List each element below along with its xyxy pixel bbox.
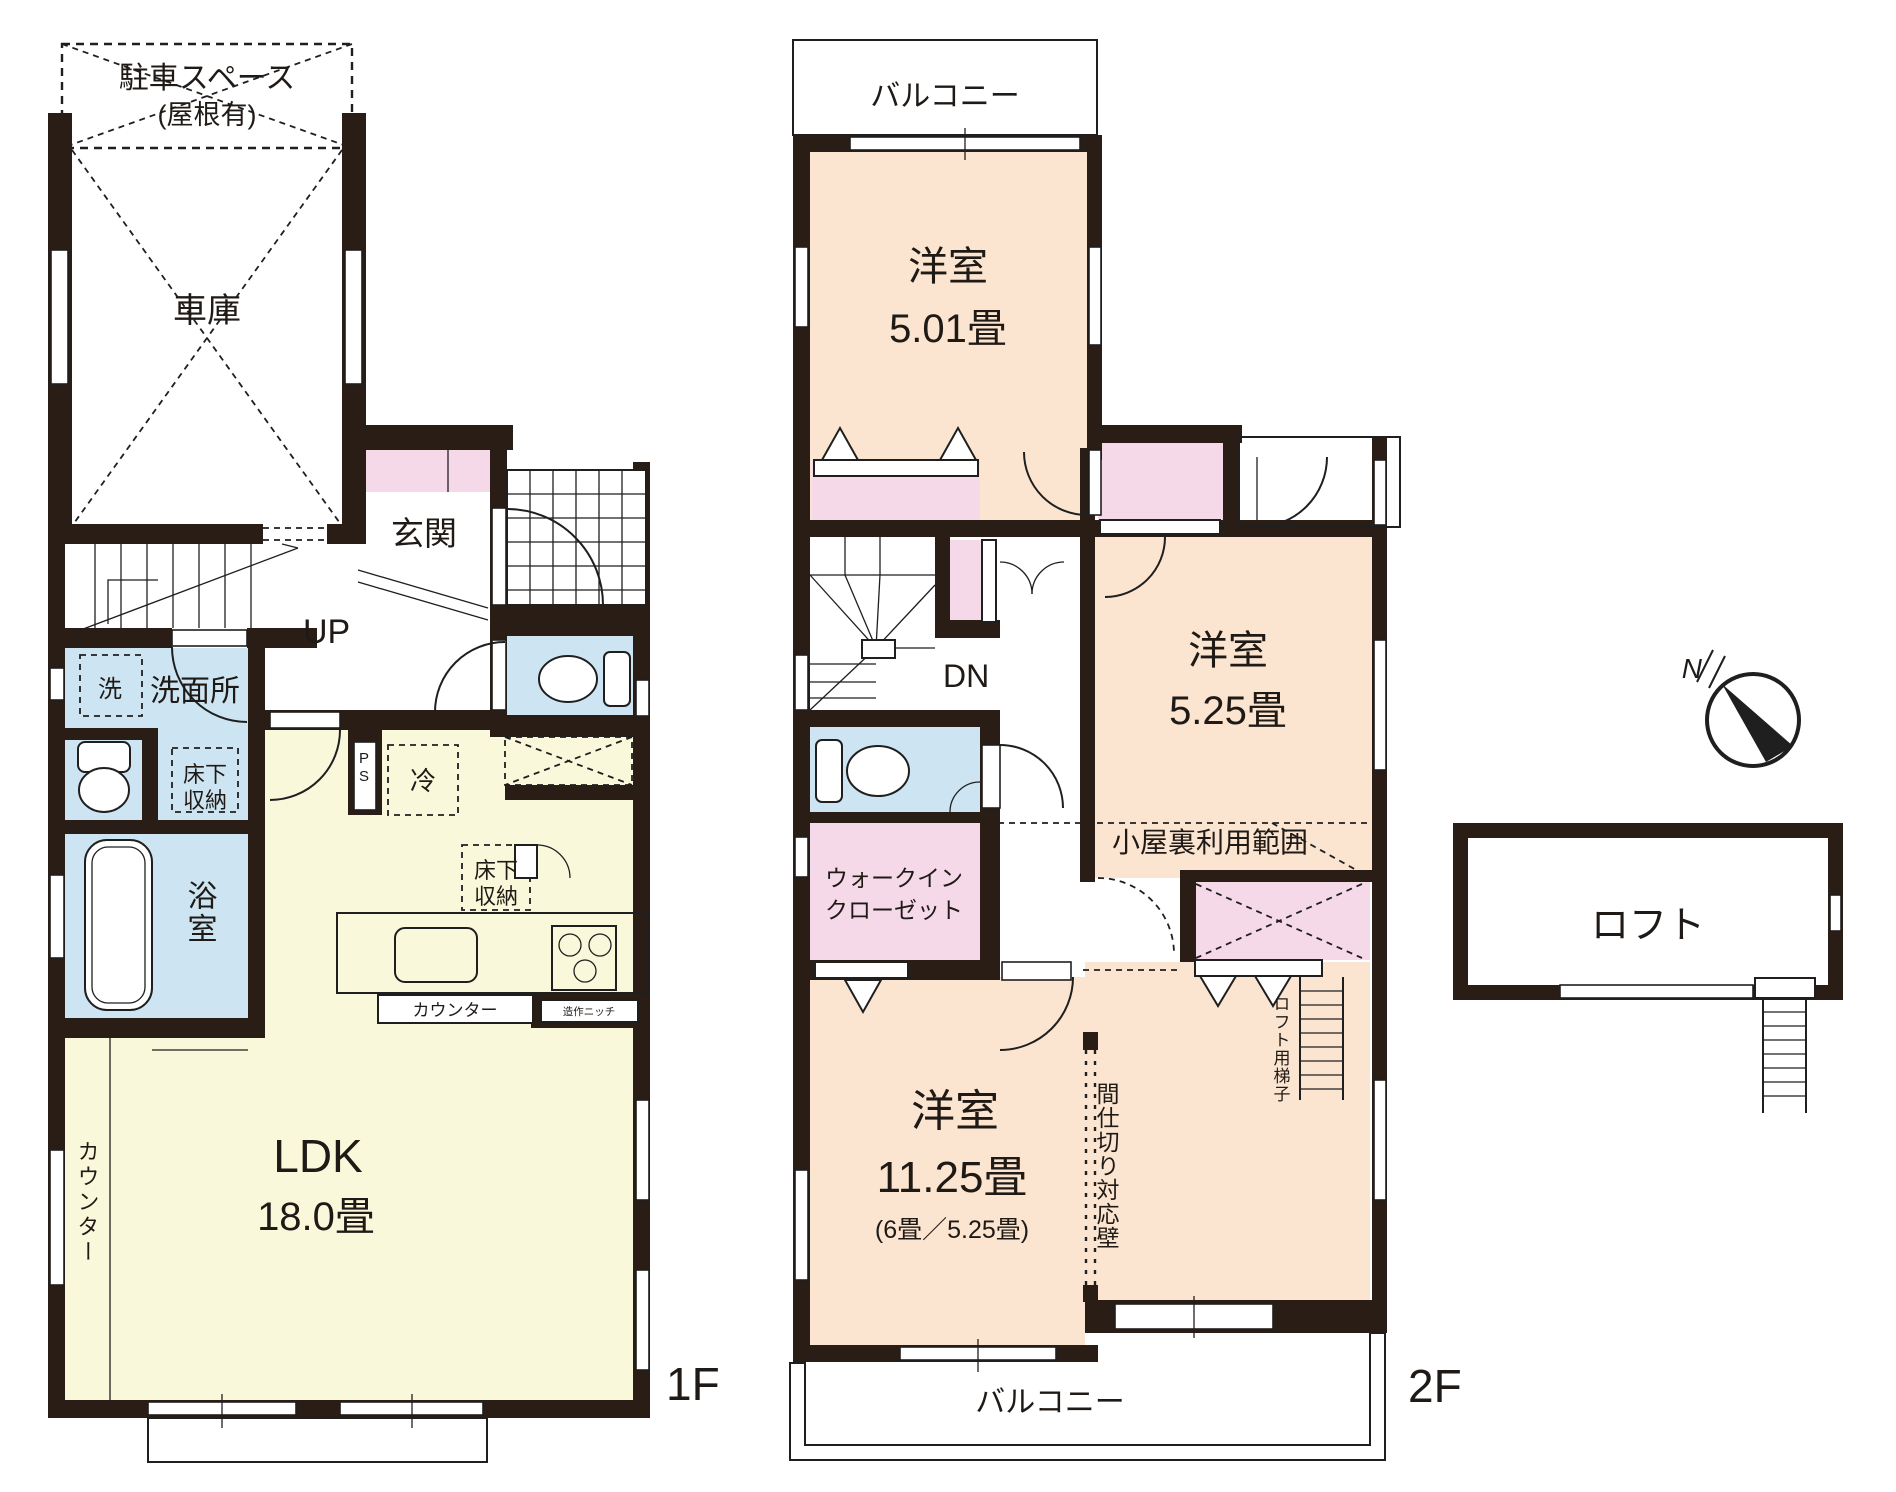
- up-label: UP: [303, 613, 350, 651]
- ps-label: PS: [356, 750, 373, 786]
- ldk-size-label: 18.0畳: [257, 1195, 375, 1239]
- balcony-top-label: バルコニー: [870, 80, 1019, 113]
- side-counter-label: カウンター: [75, 1140, 100, 1265]
- room1125-size-label: 11.25畳: [877, 1153, 1028, 1202]
- entrance-label: 玄関: [391, 515, 457, 552]
- room501-size-label: 5.01畳: [889, 307, 1007, 351]
- washroom-label: 洗面所: [150, 675, 240, 708]
- closet-hall-fill: [1098, 443, 1223, 520]
- floor2-label: 2F: [1408, 1360, 1462, 1412]
- compass: N: [1682, 650, 1799, 766]
- counter-label: カウンター: [413, 1001, 498, 1020]
- stairs-1f: [70, 544, 298, 634]
- wic-fill: [808, 823, 980, 960]
- floor1-plan: 駐車スペース (屋根有) 車庫 玄関 UP 洗 洗面所 床下 収納 浴室 冷 P…: [48, 44, 720, 1462]
- underfloor1-l2: 収納: [183, 788, 227, 813]
- parking-space: [62, 44, 352, 148]
- underfloor2-l2: 収納: [474, 884, 518, 909]
- loft-label: ロフト: [1591, 905, 1705, 947]
- attic-label: 小屋裏利用範囲: [1112, 827, 1308, 858]
- room-ldk-fill: [265, 730, 633, 1400]
- loft-ladder-label: ロフト用梯子: [1271, 995, 1291, 1103]
- room1125-note-label: (6畳／5.25畳): [875, 1216, 1029, 1244]
- closet-hall-shelf: [1100, 520, 1220, 534]
- parking-note-label: (屋根有): [158, 100, 257, 130]
- room501-label: 洋室: [908, 245, 988, 289]
- ldk-label: LDK: [273, 1130, 363, 1182]
- closet-stair-fill: [950, 540, 982, 622]
- room501-door-gap: [1089, 450, 1101, 515]
- stairs-2f: [810, 537, 935, 710]
- floor2-plan: バルコニー 洋室 5.01畳 DN 洋室 5.25畳 ウォークイン クローゼット…: [790, 40, 1462, 1460]
- washroom-door-gap: [172, 630, 247, 646]
- garage-label: 車庫: [173, 292, 241, 330]
- niche-label: 造作ニッチ: [563, 1005, 616, 1018]
- floor-plan-svg: 駐車スペース (屋根有) 車庫 玄関 UP 洗 洗面所 床下 収納 浴室 冷 P…: [0, 0, 1896, 1492]
- toilet-1f-left: [78, 742, 130, 812]
- room525-label: 洋室: [1188, 629, 1268, 673]
- washer-label: 洗: [98, 676, 122, 703]
- wic-label-1: ウォークイン: [825, 865, 963, 891]
- floor1-label: 1F: [666, 1358, 720, 1410]
- ldk-door-gap: [270, 712, 340, 728]
- garage-x: [72, 150, 342, 526]
- fridge-label: 冷: [410, 766, 436, 796]
- loft-ladder: [1755, 978, 1815, 1113]
- balcony-bottom-label: バルコニー: [975, 1386, 1124, 1419]
- north-label: N: [1682, 653, 1703, 684]
- room-1125-fill-right: [1085, 962, 1370, 1300]
- partition-label: 間仕切り対応壁: [1093, 1082, 1120, 1250]
- entrance-closet-fill: [360, 448, 492, 492]
- floor-plan-canvas: 駐車スペース (屋根有) 車庫 玄関 UP 洗 洗面所 床下 収納 浴室 冷 P…: [0, 0, 1896, 1492]
- dn-label: DN: [943, 658, 989, 694]
- room1125-label: 洋室: [911, 1087, 999, 1136]
- room525-size-label: 5.25畳: [1169, 689, 1287, 733]
- room1125-door-gap: [1002, 962, 1071, 980]
- parking-label: 駐車スペース: [119, 62, 295, 95]
- terrace-1f: [148, 1418, 487, 1462]
- wic-label-2: クローゼット: [825, 897, 963, 923]
- bathroom-label: 浴室: [183, 880, 217, 946]
- loft-plan: ロフト: [1453, 823, 1843, 1113]
- underfloor2-l1: 床下: [474, 858, 518, 883]
- underfloor1-l1: 床下: [183, 762, 227, 787]
- closet-stair-door: [982, 540, 1064, 622]
